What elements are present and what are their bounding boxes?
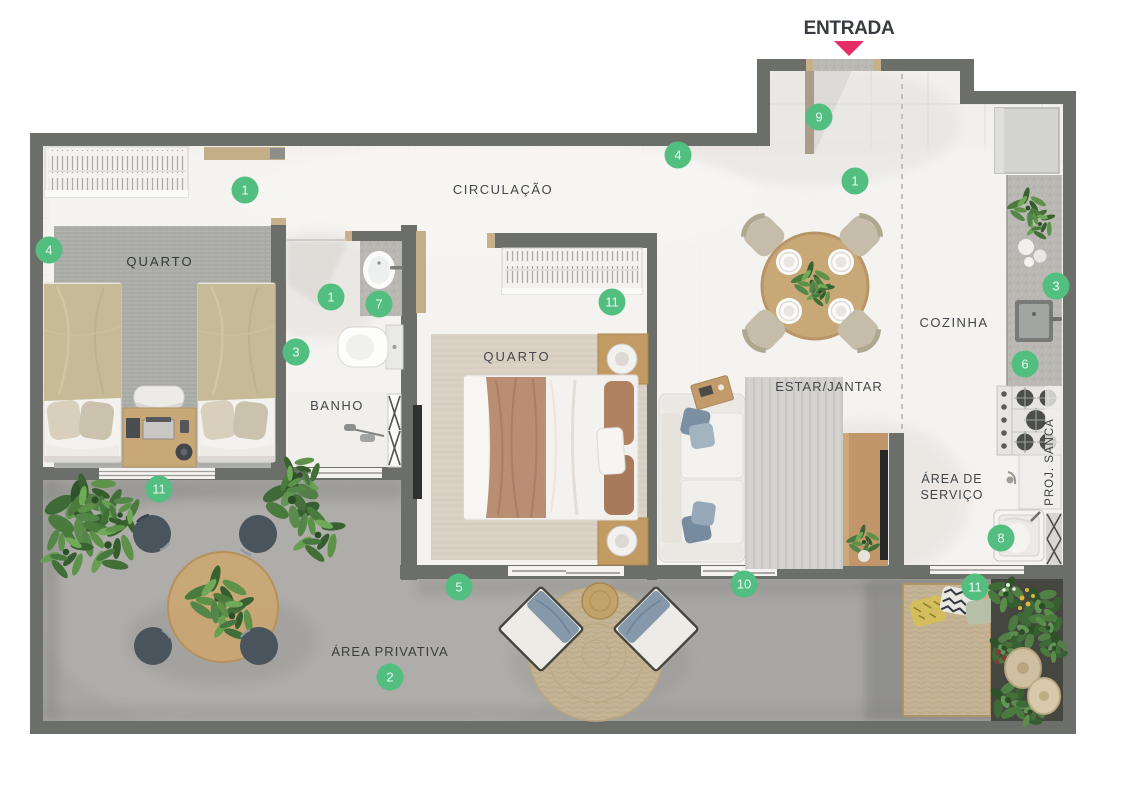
svg-text:2: 2	[386, 670, 393, 685]
svg-text:ESTAR/JANTAR: ESTAR/JANTAR	[775, 379, 883, 394]
svg-text:PROJ. SANCA: PROJ. SANCA	[1044, 418, 1056, 506]
svg-text:ÁREA DE: ÁREA DE	[921, 471, 982, 486]
svg-text:1: 1	[851, 174, 858, 189]
svg-text:1: 1	[327, 290, 334, 305]
svg-text:QUARTO: QUARTO	[126, 254, 193, 269]
svg-text:ENTRADA: ENTRADA	[804, 18, 895, 39]
svg-text:ÁREA PRIVATIVA: ÁREA PRIVATIVA	[331, 644, 448, 659]
svg-text:7: 7	[375, 297, 382, 312]
svg-text:4: 4	[45, 243, 52, 258]
svg-text:3: 3	[1052, 279, 1059, 294]
svg-text:3: 3	[292, 345, 299, 360]
svg-text:5: 5	[455, 580, 462, 595]
svg-text:11: 11	[152, 482, 166, 497]
svg-text:9: 9	[815, 110, 822, 125]
svg-text:11: 11	[968, 580, 982, 595]
svg-text:8: 8	[997, 531, 1004, 546]
svg-text:CIRCULAÇÃO: CIRCULAÇÃO	[453, 182, 553, 197]
svg-text:1: 1	[241, 183, 248, 198]
svg-text:QUARTO: QUARTO	[483, 349, 550, 364]
svg-text:11: 11	[605, 295, 619, 310]
svg-text:6: 6	[1021, 357, 1028, 372]
svg-text:10: 10	[737, 577, 751, 592]
svg-text:SERVIÇO: SERVIÇO	[920, 488, 983, 502]
svg-text:COZINHA: COZINHA	[920, 315, 989, 330]
svg-text:4: 4	[674, 148, 681, 163]
svg-text:BANHO: BANHO	[310, 398, 364, 413]
